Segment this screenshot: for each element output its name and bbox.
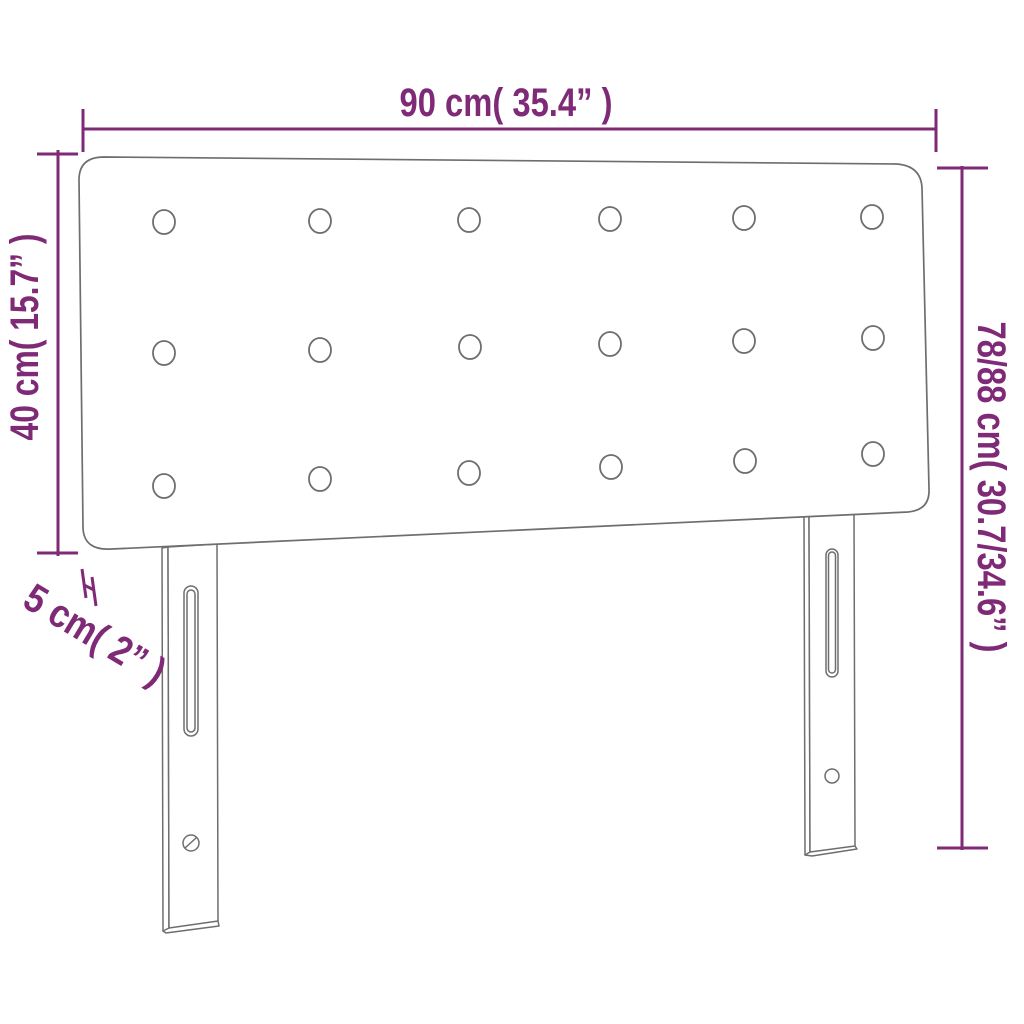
headboard bbox=[79, 157, 929, 933]
width-dimension: 90 cm( 35.4” ) bbox=[83, 81, 936, 152]
depth-dimension: 5 cm( 2” ) bbox=[16, 569, 173, 694]
headboard-dimension-diagram: 90 cm( 35.4” ) 40 cm( 15.7” ) 5 cm( 2” )… bbox=[0, 0, 1024, 1024]
total-height-label: 78/88 cm( 30.7/34.6” ) bbox=[969, 322, 1013, 653]
headboard-right-leg bbox=[804, 513, 857, 856]
width-dimension-label: 90 cm( 35.4” ) bbox=[400, 81, 613, 125]
panel-height-dimension: 40 cm( 15.7” ) bbox=[3, 150, 78, 556]
right-leg-front-face bbox=[809, 513, 855, 852]
panel-height-label: 40 cm( 15.7” ) bbox=[3, 234, 47, 441]
depth-tick-top bbox=[82, 569, 86, 598]
total-height-dimension: 78/88 cm( 30.7/34.6” ) bbox=[937, 166, 1013, 850]
depth-tick-bottom bbox=[92, 577, 96, 606]
headboard-panel bbox=[79, 157, 929, 549]
diagram-canvas: 90 cm( 35.4” ) 40 cm( 15.7” ) 5 cm( 2” )… bbox=[0, 0, 1024, 1024]
headboard-left-leg bbox=[162, 544, 219, 933]
